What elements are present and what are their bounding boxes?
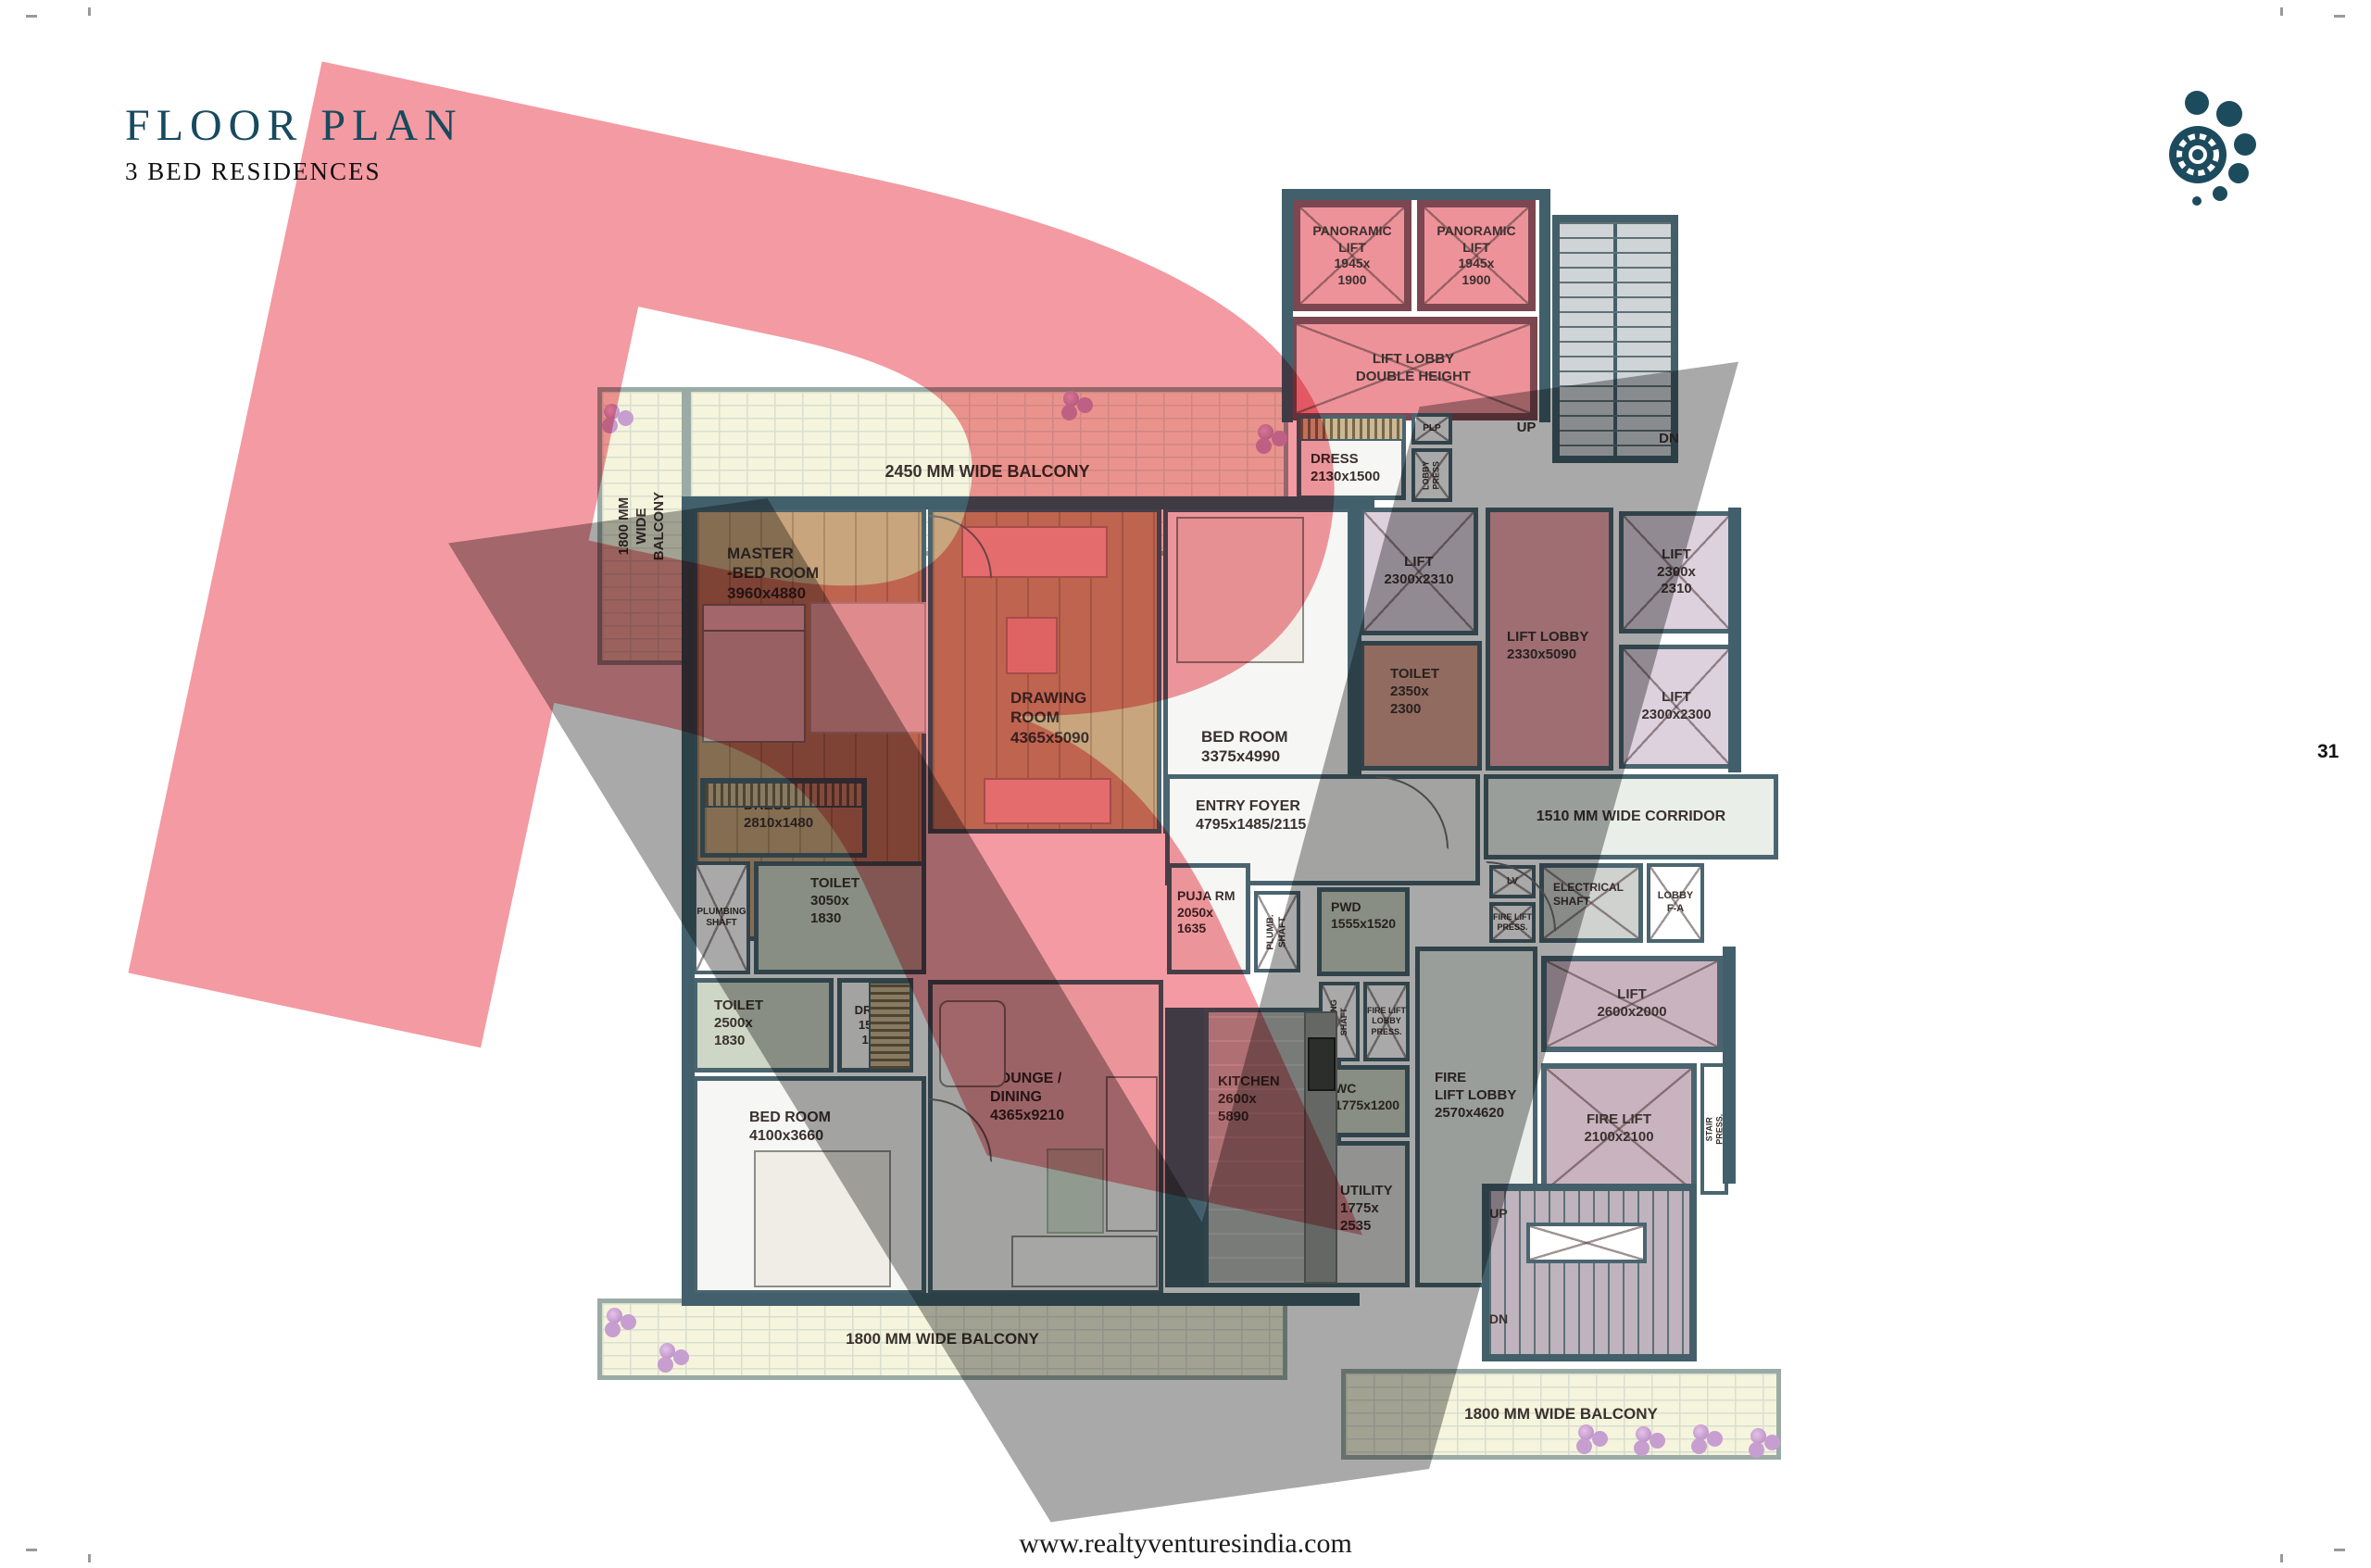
corner-mark <box>2334 15 2345 18</box>
room-label-lobby-fa-shaft: LOBBY F-A <box>1658 890 1694 916</box>
room-balcony-left: 1800 MM WIDE BALCONY <box>597 387 686 665</box>
website-url: www.realtyventuresindia.com <box>0 1528 2371 1560</box>
wall-segment <box>682 496 695 1306</box>
room-label-plp-shaft: PLP <box>1423 423 1440 435</box>
flower-decoration <box>1578 1424 1594 1440</box>
title-block: FLOOR PLAN 3 BED RESIDENCES <box>125 104 463 186</box>
room-lift-c: LIFT 2300x2300 <box>1619 645 1734 769</box>
room-label-toilet-mid: TOILET 2350x 2300 <box>1390 666 1439 718</box>
room-label-balcony-bottom-right: 1800 MM WIDE BALCONY <box>1464 1404 1658 1424</box>
room-label-stair-press-shaft: STAIR PRESS. <box>1704 1113 1725 1144</box>
room-label-kitchen: KITCHEN 2600x 5890 <box>1218 1073 1280 1125</box>
wardrobe-hatch <box>704 782 863 808</box>
sofa-icon <box>1011 1236 1158 1287</box>
page-number: 31 <box>2317 741 2339 763</box>
wall-segment <box>1539 189 1550 422</box>
room-stair-top <box>1552 215 1678 463</box>
room-label-utility: UTILITY 1775x 2535 <box>1340 1183 1393 1235</box>
hob-icon <box>1308 1037 1336 1091</box>
room-lift-a: LIFT 2300x2310 <box>1360 508 1478 635</box>
brand-logo-icon <box>2136 43 2275 214</box>
room-panoramic-lift-1: PANORAMIC LIFT 1945x 1900 <box>1293 200 1411 311</box>
room-label-lift-lobby-main: LIFT LOBBY 2330x5090 <box>1507 629 1588 664</box>
shaft-cross-mark <box>1530 1226 1643 1260</box>
room-lift-lobby-main: LIFT LOBBY 2330x5090 <box>1486 508 1613 771</box>
room-label-panoramic-lift-1: PANORAMIC LIFT 1945x 1900 <box>1312 223 1391 288</box>
room-label-plumb-shaft-2: PLUMB. SHAFT <box>1266 914 1289 949</box>
rug-icon <box>1047 1148 1104 1234</box>
bed-icon <box>1176 517 1304 663</box>
room-toilet-3050: TOILET 3050x 1830 <box>754 861 926 974</box>
flower-decoration <box>1636 1426 1651 1442</box>
room-plp-shaft: PLP <box>1411 413 1452 445</box>
room-plumbing-shaft-1: PLUMBING SHAFT <box>693 861 750 974</box>
room-label-toilet-2500: TOILET 2500x 1830 <box>714 997 763 1049</box>
room-label-lift-2600: LIFT 2600x2000 <box>1597 986 1666 1022</box>
coffee-table-icon <box>1006 617 1058 674</box>
room-label-balcony-left: 1800 MM WIDE BALCONY <box>616 486 668 566</box>
page-subtitle: 3 BED RESIDENCES <box>125 157 463 186</box>
room-balcony-bottom-left: 1800 MM WIDE BALCONY <box>597 1298 1287 1380</box>
flower-decoration <box>1063 391 1079 407</box>
flower-decoration <box>1750 1428 1766 1444</box>
room-label-lift-lobby-double-height: LIFT LOBBY DOUBLE HEIGHT <box>1356 351 1471 386</box>
room-label-bedroom-left: BED ROOM 4100x3660 <box>749 1109 831 1146</box>
wardrobe-hatch <box>1298 417 1404 441</box>
room-label-wc: WC 1775x1200 <box>1335 1081 1399 1113</box>
room-label-plumbing-shaft-1: PLUMBING SHAFT <box>696 907 746 930</box>
flower-decoration <box>1258 424 1273 440</box>
wall-segment <box>1282 189 1550 200</box>
room-dn-label-top: DN <box>1650 428 1687 450</box>
flower-decoration <box>659 1343 675 1359</box>
room-puja-room: PUJA RM 2050x 1635 <box>1167 863 1250 974</box>
room-label-fire-lift: FIRE LIFT 2100x2100 <box>1584 1111 1653 1147</box>
room-lobby-press-shaft: LOBBY PRESS <box>1411 448 1452 502</box>
room-label-entry-foyer: ENTRY FOYER 4795x1485/2115 <box>1196 797 1306 834</box>
wall-segment <box>682 1293 1360 1306</box>
room-balcony-bottom-right: 1800 MM WIDE BALCONY <box>1341 1369 1781 1460</box>
room-label-balcony-bottom-left: 1800 MM WIDE BALCONY <box>846 1329 1039 1348</box>
rug-icon <box>809 602 926 734</box>
room-label-lobby-press-shaft: LOBBY PRESS <box>1422 460 1443 490</box>
room-lift-lobby-double-height: LIFT LOBBY DOUBLE HEIGHT <box>1289 317 1537 420</box>
room-pwd: PWD 1555x1520 <box>1317 887 1410 976</box>
room-label-fire-lift-lobby-press-shaft: FIRE LIFT LOBBY PRESS. <box>1367 1006 1406 1037</box>
room-label-lift-c: LIFT 2300x2300 <box>1641 689 1711 724</box>
room-fire-lift-lobby-press-shaft: FIRE LIFT LOBBY PRESS. <box>1363 982 1410 1061</box>
room-label-dn-label-top: DN <box>1659 431 1679 448</box>
room-lift-b: LIFT 2300x 2310 <box>1619 511 1734 633</box>
wall-segment <box>1165 1008 1204 1287</box>
room-stair-bottom-landing <box>1526 1223 1647 1263</box>
room-label-balcony-top: 2450 MM WIDE BALCONY <box>884 461 1089 483</box>
room-label-up-label-top: UP <box>1517 420 1537 437</box>
room-label-dress-top: DRESS 2130x1500 <box>1311 451 1380 486</box>
sofa-icon <box>984 778 1111 824</box>
room-fire-lift: FIRE LIFT 2100x2100 <box>1541 1063 1697 1195</box>
floor-plan: 1800 MM WIDE BALCONY2450 MM WIDE BALCONY… <box>0 0 2371 1568</box>
wall-segment <box>1282 189 1293 422</box>
room-corridor: 1510 MM WIDE CORRIDOR <box>1484 774 1778 859</box>
room-label-pwd: PWD 1555x1520 <box>1331 899 1396 932</box>
room-label-corridor: 1510 MM WIDE CORRIDOR <box>1537 808 1725 826</box>
room-plumb-shaft-2: PLUMB. SHAFT <box>1254 891 1300 972</box>
room-toilet-2500: TOILET 2500x 1830 <box>693 978 834 1073</box>
pillow-icon <box>702 604 806 632</box>
corner-mark <box>2280 7 2283 16</box>
room-lobby-fa-shaft: LOBBY F-A <box>1647 863 1704 943</box>
room-label-puja-room: PUJA RM 2050x 1635 <box>1177 888 1236 937</box>
flower-decoration <box>1693 1424 1709 1440</box>
wall-segment <box>1728 508 1741 772</box>
room-dn-label-bottom: DN <box>1480 1310 1517 1330</box>
wall-segment <box>1349 508 1361 776</box>
room-label-dn-label-bottom: DN <box>1489 1311 1508 1328</box>
room-panoramic-lift-2: PANORAMIC LIFT 1945x 1900 <box>1417 200 1536 311</box>
room-label-master-bedroom: MASTER -BED ROOM 3960x4880 <box>727 544 819 603</box>
room-label-fire-lift-lobby: FIRE LIFT LOBBY 2570x4620 <box>1435 1070 1516 1122</box>
room-up-label-bottom: UP <box>1480 1204 1517 1224</box>
flower-decoration <box>607 1308 622 1323</box>
flower-decoration <box>604 404 620 420</box>
room-label-drawing-room: DRAWING ROOM 4365x5090 <box>1010 688 1089 747</box>
corner-mark <box>26 15 37 18</box>
bed-icon <box>754 1150 891 1287</box>
corner-mark <box>88 7 91 16</box>
room-label-lift-a: LIFT 2300x2310 <box>1384 554 1453 589</box>
sofa-icon <box>1106 1076 1158 1232</box>
room-lift-2600: LIFT 2600x2000 <box>1541 956 1723 1052</box>
wall-segment <box>682 496 1374 509</box>
room-label-electrical-shaft: ELECTRICAL SHAFT <box>1553 881 1624 909</box>
room-label-lift-b: LIFT 2300x 2310 <box>1657 546 1696 598</box>
room-label-up-label-bottom: UP <box>1489 1206 1507 1223</box>
dining-table-icon <box>939 1000 1006 1087</box>
room-label-toilet-3050: TOILET 3050x 1830 <box>810 875 859 927</box>
room-label-panoramic-lift-2: PANORAMIC LIFT 1945x 1900 <box>1436 223 1515 288</box>
page-title: FLOOR PLAN <box>125 104 463 148</box>
floor-plan-page: FLOOR PLAN 3 BED RESIDENCES 31 <box>0 0 2371 1568</box>
wardrobe-hatch <box>869 982 911 1071</box>
room-label-bedroom-mid: BED ROOM 3375x4990 <box>1201 727 1288 767</box>
room-toilet-mid: TOILET 2350x 2300 <box>1360 641 1482 771</box>
wall-segment <box>1723 947 1736 1184</box>
